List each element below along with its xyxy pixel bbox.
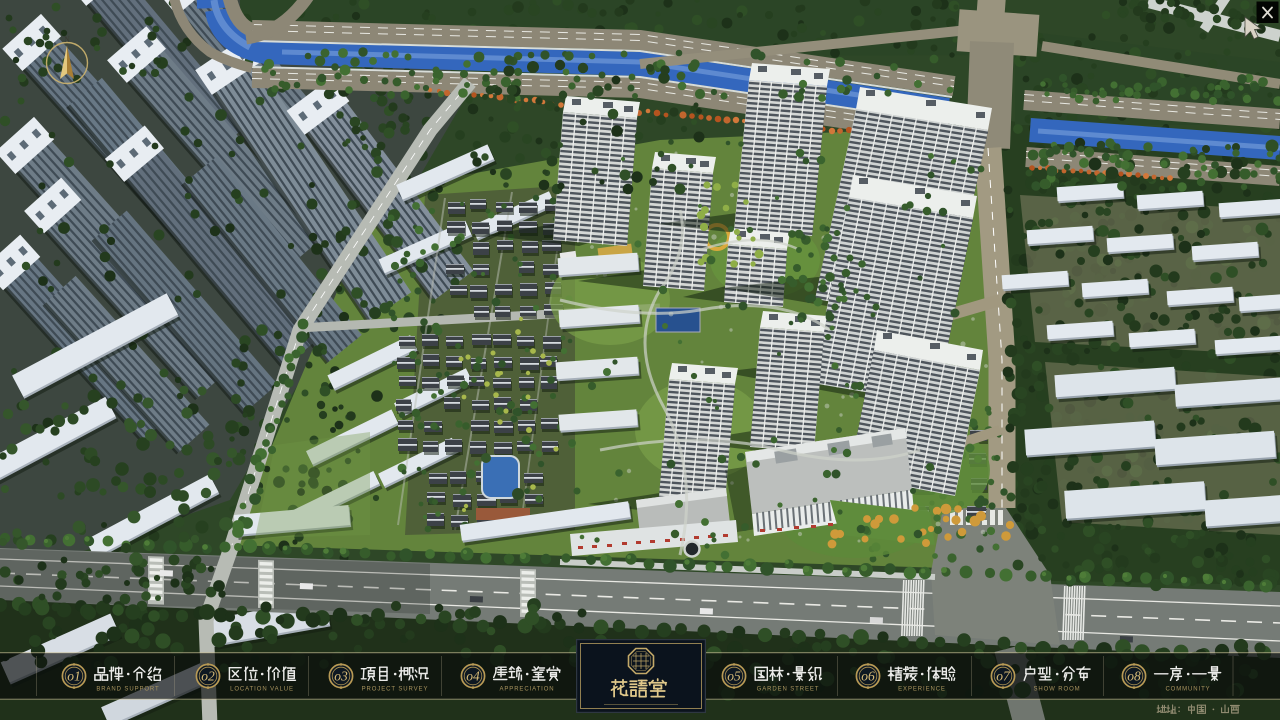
- svg-text:COMMUNITY: COMMUNITY: [1165, 687, 1210, 693]
- svg-text:o8: o8: [1127, 669, 1141, 684]
- svg-text:o6: o6: [861, 669, 875, 684]
- svg-text:o3: o3: [334, 669, 348, 684]
- svg-text:SHOW ROOM: SHOW ROOM: [1033, 687, 1080, 693]
- svg-text:o4: o4: [466, 669, 480, 684]
- svg-text:APPRECIATION: APPRECIATION: [499, 687, 554, 693]
- svg-text:EXPERIENCE: EXPERIENCE: [898, 687, 946, 693]
- svg-text:o7: o7: [996, 669, 1011, 684]
- svg-text:BRAND SUPPORT: BRAND SUPPORT: [96, 687, 159, 693]
- svg-text:PROJECT SURVEY: PROJECT SURVEY: [362, 687, 429, 693]
- svg-text:LOCATION VALUE: LOCATION VALUE: [230, 687, 294, 693]
- svg-text:o2: o2: [201, 669, 215, 684]
- svg-text:o1: o1: [67, 669, 81, 684]
- svg-text:GARDEN STREET: GARDEN STREET: [757, 687, 820, 693]
- svg-text:o5: o5: [727, 669, 741, 684]
- svg-text:N: N: [64, 35, 70, 44]
